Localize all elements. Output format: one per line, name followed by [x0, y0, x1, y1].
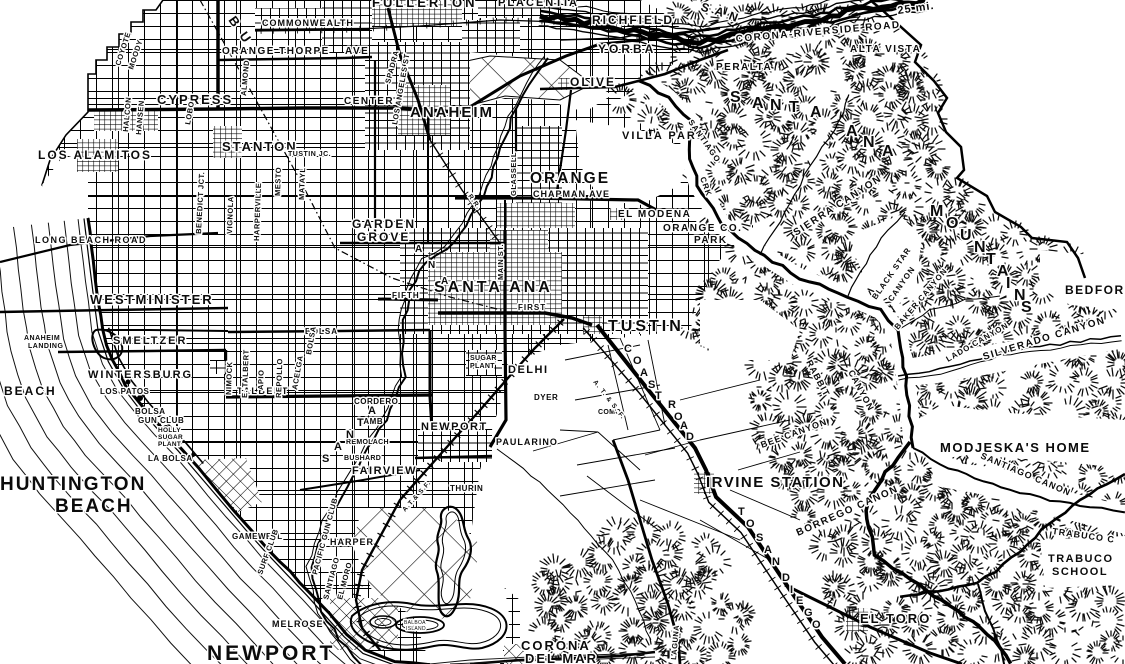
svg-text:T: T: [357, 417, 364, 429]
svg-text:AVE: AVE: [345, 46, 369, 57]
svg-text:A: A: [415, 244, 422, 255]
svg-text:CENTER: CENTER: [344, 96, 394, 107]
svg-text:EL MODENA: EL MODENA: [618, 209, 691, 220]
svg-text:T: T: [655, 390, 663, 402]
svg-text:GLASSELL: GLASSELL: [509, 152, 518, 196]
svg-text:O: O: [746, 518, 756, 530]
svg-text:WINTERSBURG: WINTERSBURG: [88, 369, 193, 381]
svg-text:I: I: [790, 584, 794, 596]
svg-text:S: S: [1021, 299, 1032, 316]
svg-text:STANTON: STANTON: [222, 139, 298, 154]
svg-text:TUSTIN JC.: TUSTIN JC.: [288, 151, 331, 158]
svg-text:A: A: [752, 95, 764, 112]
svg-text:TRABUCO: TRABUCO: [1048, 553, 1114, 565]
svg-text:TUSTIN: TUSTIN: [608, 318, 684, 335]
svg-text:A: A: [764, 544, 773, 556]
svg-text:NIMOCK: NIMOCK: [224, 361, 234, 395]
svg-text:T: T: [738, 506, 746, 518]
svg-text:PARK: PARK: [694, 235, 728, 246]
svg-text:OLIVE: OLIVE: [570, 75, 616, 89]
svg-text:A: A: [640, 367, 649, 379]
svg-text:LONG BEACH ROAD: LONG BEACH ROAD: [35, 235, 147, 245]
svg-text:C: C: [624, 343, 633, 355]
svg-text:PAULARINO: PAULARINO: [496, 437, 558, 447]
svg-text:ORANGE THORPE: ORANGE THORPE: [222, 46, 330, 57]
svg-text:S: S: [322, 453, 329, 465]
svg-text:O: O: [812, 619, 822, 631]
svg-text:LA BOLSA: LA BOLSA: [148, 454, 193, 463]
svg-text:LOS ALAMITOS: LOS ALAMITOS: [38, 148, 152, 162]
svg-text:T: T: [789, 99, 799, 116]
svg-text:BEACH: BEACH: [4, 384, 57, 398]
svg-text:U: U: [960, 227, 972, 244]
svg-text:CORDERO: CORDERO: [354, 397, 398, 406]
svg-text:VIGNOLA: VIGNOLA: [225, 196, 235, 234]
svg-text:BEDFORD: BEDFORD: [1065, 283, 1125, 297]
svg-text:SMELTZER: SMELTZER: [113, 335, 187, 347]
svg-text:ANAHEIM: ANAHEIM: [24, 335, 60, 342]
svg-text:N: N: [974, 239, 986, 256]
svg-text:BOLSA: BOLSA: [135, 407, 166, 416]
svg-text:MATAYL: MATAYL: [297, 167, 307, 200]
svg-text:A: A: [334, 441, 342, 453]
svg-text:ORANGE CO.: ORANGE CO.: [663, 223, 742, 234]
svg-text:A: A: [882, 143, 894, 160]
svg-text:SCHOOL: SCHOOL: [1052, 566, 1108, 578]
svg-text:N: N: [428, 260, 435, 271]
svg-text:G: G: [804, 607, 814, 619]
svg-text:GARDEN: GARDEN: [352, 217, 416, 231]
svg-text:LANDING: LANDING: [28, 343, 63, 350]
svg-text:PLANT: PLANT: [470, 363, 495, 370]
svg-text:LOS PATOS: LOS PATOS: [100, 387, 150, 396]
svg-text:S: S: [730, 89, 741, 106]
svg-text:APIO: APIO: [256, 369, 266, 390]
svg-text:SUGAR: SUGAR: [158, 434, 183, 441]
svg-text:THURIN: THURIN: [450, 484, 483, 493]
svg-text:N: N: [770, 97, 782, 114]
svg-text:FAIRVIEW: FAIRVIEW: [352, 465, 417, 477]
svg-text:N: N: [863, 134, 875, 151]
svg-text:COMMONWEALTH: COMMONWEALTH: [262, 18, 354, 28]
svg-text:FIFTH: FIFTH: [392, 291, 420, 300]
svg-text:O: O: [633, 355, 643, 367]
svg-text:N: N: [772, 556, 781, 568]
svg-text:NEWPORT: NEWPORT: [421, 421, 488, 433]
svg-text:GROVE: GROVE: [357, 230, 410, 244]
svg-text:WESTMINISTER: WESTMINISTER: [90, 292, 214, 307]
svg-text:ANAHEIM: ANAHEIM: [410, 104, 494, 121]
svg-text:HUNTINGTON: HUNTINGTON: [0, 474, 146, 495]
svg-text:E. TALBERT: E. TALBERT: [240, 349, 251, 398]
svg-text:BUSHARD: BUSHARD: [344, 455, 381, 462]
svg-text:O: O: [946, 215, 958, 232]
svg-text:A: A: [846, 123, 858, 140]
svg-text:HOLLY: HOLLY: [158, 427, 181, 434]
svg-text:PLACENTIA: PLACENTIA: [498, 0, 579, 9]
svg-text:D: D: [686, 431, 695, 443]
svg-text:DEL MAR: DEL MAR: [525, 651, 598, 664]
svg-text:RICHFIELD: RICHFIELD: [592, 13, 674, 27]
svg-text:MAIN ST.: MAIN ST.: [496, 244, 505, 280]
svg-text:MELROSE: MELROSE: [272, 619, 324, 629]
svg-text:D: D: [782, 572, 791, 584]
svg-text:GUN CLUB: GUN CLUB: [138, 416, 184, 425]
svg-text:E: E: [796, 595, 804, 607]
svg-text:DYER: DYER: [534, 393, 558, 402]
svg-text:PERALTA: PERALTA: [716, 62, 772, 73]
svg-text:SUGAR: SUGAR: [470, 355, 497, 362]
svg-text:R: R: [668, 399, 677, 411]
svg-text:HARPER: HARPER: [330, 537, 374, 547]
svg-text:A: A: [441, 276, 448, 287]
svg-text:NEWPORT: NEWPORT: [207, 642, 335, 664]
svg-text:ALTA VISTA: ALTA VISTA: [850, 44, 921, 55]
svg-text:SANTA ANA: SANTA ANA: [434, 279, 553, 296]
svg-text:IRVINE STATION: IRVINE STATION: [706, 474, 845, 491]
svg-text:MESTO: MESTO: [273, 167, 283, 196]
svg-text:ISLAND: ISLAND: [406, 626, 426, 632]
svg-text:T: T: [986, 251, 996, 268]
svg-text:YORBA: YORBA: [598, 42, 656, 56]
svg-text:DELHI: DELHI: [508, 364, 549, 376]
svg-text:A: A: [368, 405, 376, 417]
svg-text:EL TORO: EL TORO: [860, 611, 931, 626]
svg-text:I: I: [1006, 275, 1010, 292]
svg-text:FIRST: FIRST: [518, 303, 546, 312]
svg-text:S: S: [756, 532, 764, 544]
svg-text:CHAPMAN AVE: CHAPMAN AVE: [533, 189, 610, 199]
svg-text:M: M: [930, 203, 943, 220]
svg-text:MODJESKA'S HOME: MODJESKA'S HOME: [940, 440, 1091, 455]
svg-text:N: N: [346, 429, 354, 441]
svg-text:ORANGE: ORANGE: [530, 170, 610, 187]
svg-text:A: A: [810, 104, 822, 121]
svg-text:BEACH: BEACH: [55, 496, 133, 517]
svg-text:PLANT: PLANT: [158, 441, 181, 448]
svg-text:REPOLLO: REPOLLO: [274, 358, 284, 398]
